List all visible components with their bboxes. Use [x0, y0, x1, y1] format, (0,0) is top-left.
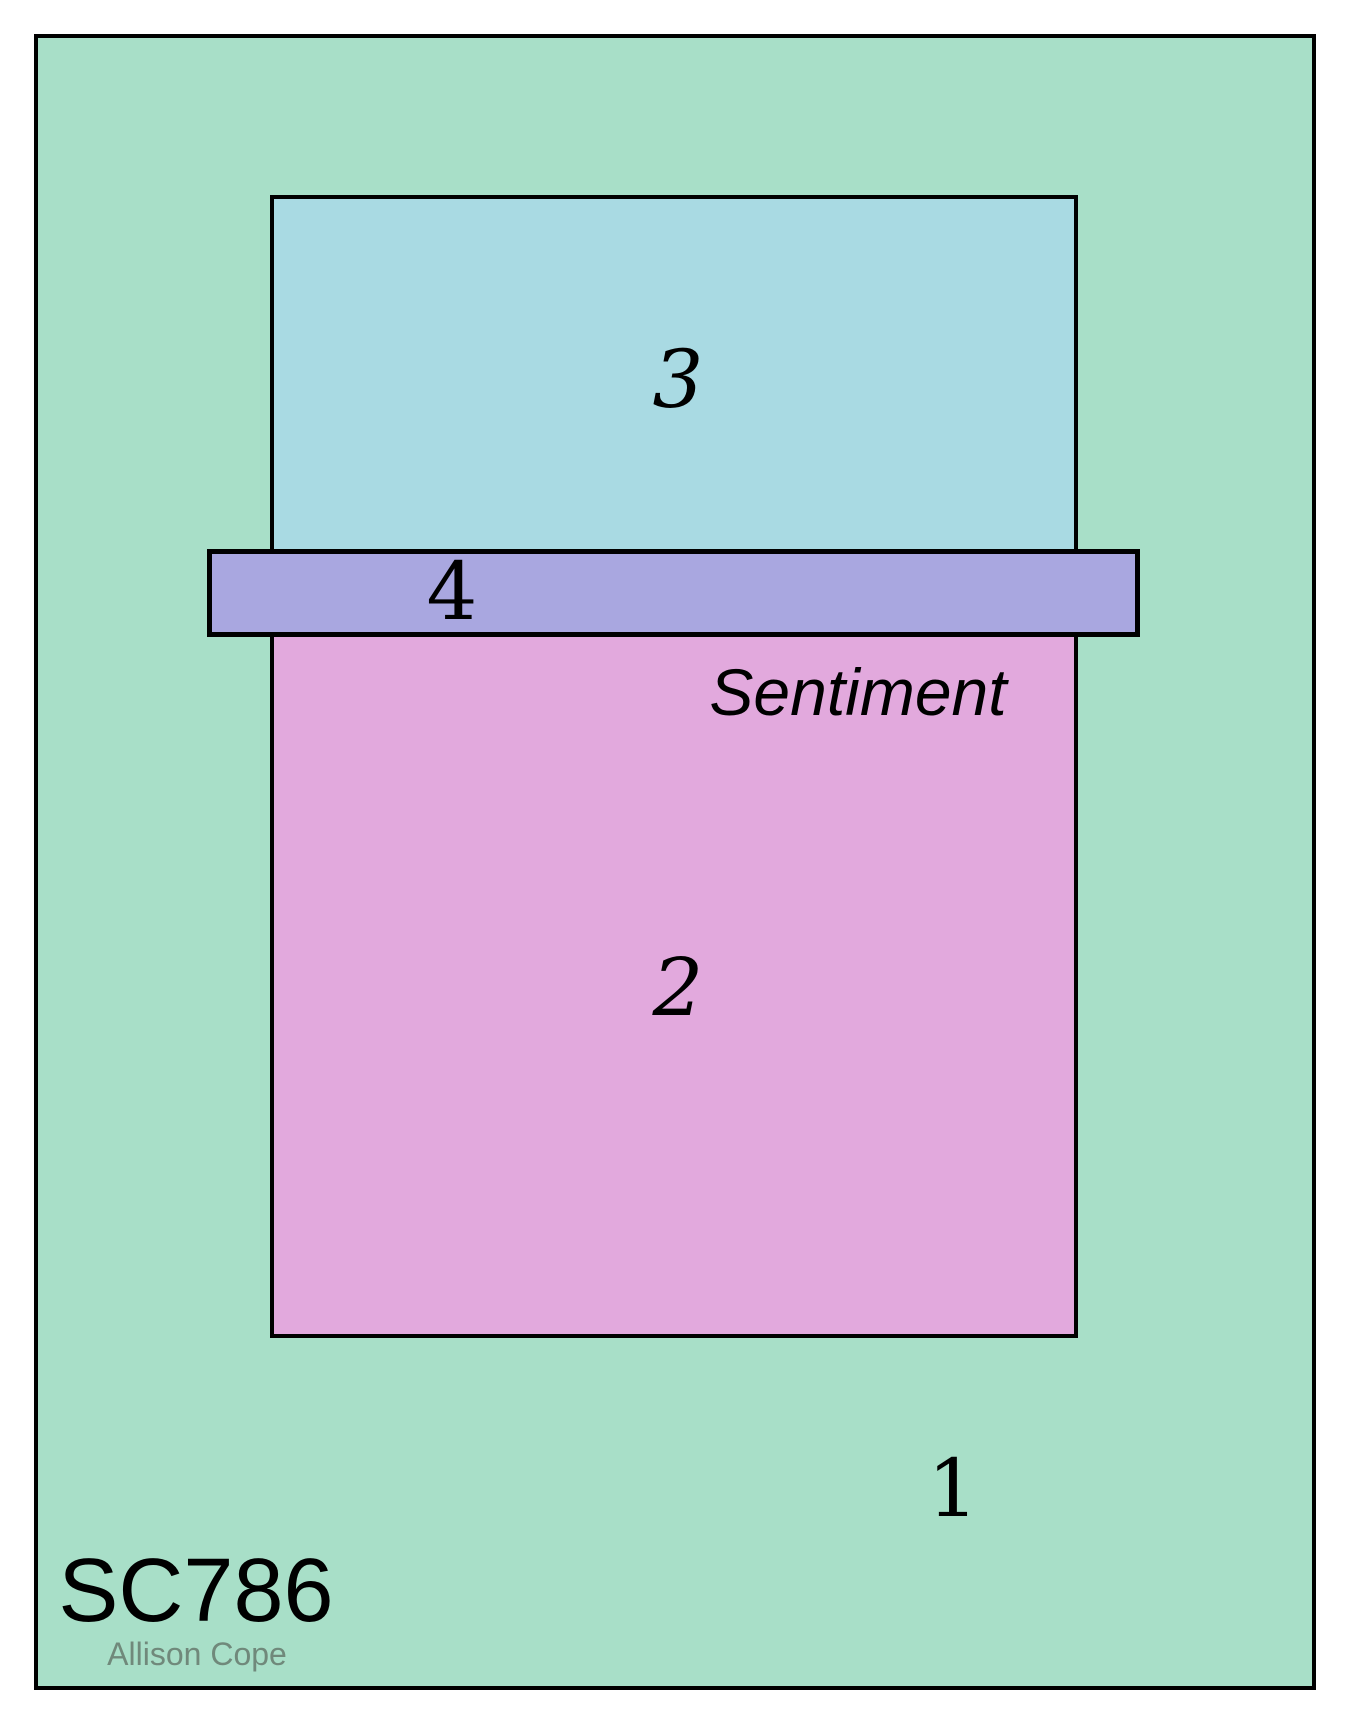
- card-sketch-canvas: 3 4 Sentiment 2 1 SC786 Allison Cope: [0, 0, 1350, 1725]
- layer-4-number: 4: [427, 552, 478, 632]
- layer-3-number: 3: [653, 340, 704, 420]
- sentiment-strip-rect: [207, 549, 1140, 637]
- sketch-author-text: Allison Cope: [107, 1638, 287, 1670]
- sentiment-placeholder-text: Sentiment: [709, 659, 1006, 725]
- sketch-code-text: SC786: [58, 1546, 333, 1636]
- layer-1-number: 1: [928, 1449, 979, 1529]
- layer-2-number: 2: [653, 948, 704, 1028]
